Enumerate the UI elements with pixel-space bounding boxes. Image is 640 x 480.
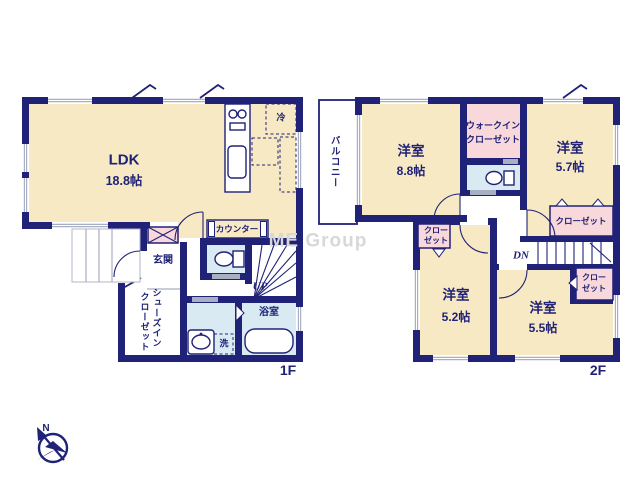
window — [380, 97, 428, 104]
wic-label-line2: クローゼット — [466, 136, 520, 145]
room55-size-label: 5.5帖 — [529, 322, 558, 334]
washbasin — [188, 330, 214, 354]
window — [433, 355, 468, 362]
porch-steps — [72, 229, 140, 282]
ldk-size-label: 18.8帖 — [106, 175, 143, 188]
toilet2-sliding-door — [470, 190, 496, 195]
window — [613, 125, 620, 165]
stove-burner — [238, 110, 246, 118]
window — [413, 270, 420, 330]
stairs-up-label: UP — [253, 282, 268, 293]
vent-mark — [563, 85, 587, 98]
closet52-label-line2: ゼット — [424, 237, 448, 245]
room57-size-label: 5.7帖 — [556, 161, 585, 173]
toilet1-sliding-door — [212, 274, 240, 279]
room57-name-label: 洋室 — [557, 141, 584, 155]
window — [296, 132, 303, 188]
ldk-floor — [29, 104, 296, 222]
wic-opening — [503, 159, 518, 164]
watermark: ME Group — [269, 232, 368, 251]
compass-north-label: N — [42, 424, 49, 434]
window — [163, 97, 205, 104]
kitchen-sink — [228, 146, 246, 178]
bathtub — [245, 329, 293, 353]
window — [355, 115, 362, 205]
laundry-label: 洗 — [219, 340, 228, 349]
window — [22, 144, 29, 172]
window — [22, 178, 29, 212]
room88-size-label: 8.8帖 — [397, 165, 426, 177]
window — [515, 355, 560, 362]
toilet2-fixture — [486, 171, 514, 185]
shoes-closet-label-line1: シューズイン — [152, 288, 161, 348]
balcony-label: バルコニー — [329, 136, 339, 189]
room52-size-label: 5.2帖 — [442, 311, 471, 323]
window — [613, 295, 620, 338]
window — [296, 307, 303, 331]
entrance-label: 玄関 — [153, 256, 173, 266]
stove-grill — [230, 123, 245, 130]
closet52-label-line1: クロー — [424, 227, 448, 235]
fridge-label: 冷 — [276, 114, 285, 123]
closet55-label-line1: クロー — [582, 274, 606, 282]
vent-mark — [200, 85, 224, 98]
toilet1-fixture — [215, 251, 244, 267]
wic-floor — [467, 104, 520, 158]
window — [543, 97, 583, 104]
wic-label-line1: ウォークイン — [466, 122, 520, 131]
window — [52, 222, 108, 229]
washroom-sliding-door — [192, 297, 218, 302]
entrance-marker — [148, 227, 178, 243]
window — [48, 97, 92, 104]
floorplan-page: ME Group LDK 18.8帖 玄関 シューズイン クローゼット カウンタ… — [0, 0, 640, 480]
closet57-label: クローゼット — [555, 217, 606, 226]
room88-name-label: 洋室 — [398, 144, 425, 158]
floor1-label: 1F — [280, 363, 296, 377]
kitchen-island — [225, 104, 250, 192]
bathroom-label: 浴室 — [259, 308, 279, 318]
stairs-down-label: DN — [513, 251, 529, 262]
shoes-closet-label-line2: クローゼット — [140, 292, 149, 352]
room55-name-label: 洋室 — [530, 301, 557, 315]
counter-label: カウンター — [216, 225, 259, 234]
ldk-name-label: LDK — [109, 153, 140, 168]
stairs-down — [538, 242, 611, 264]
room52-name-label: 洋室 — [443, 288, 470, 302]
floor2-label: 2F — [590, 363, 606, 377]
stove-burner — [229, 110, 237, 118]
vent-mark — [132, 85, 156, 98]
closet55-label-line2: ゼット — [582, 285, 606, 293]
